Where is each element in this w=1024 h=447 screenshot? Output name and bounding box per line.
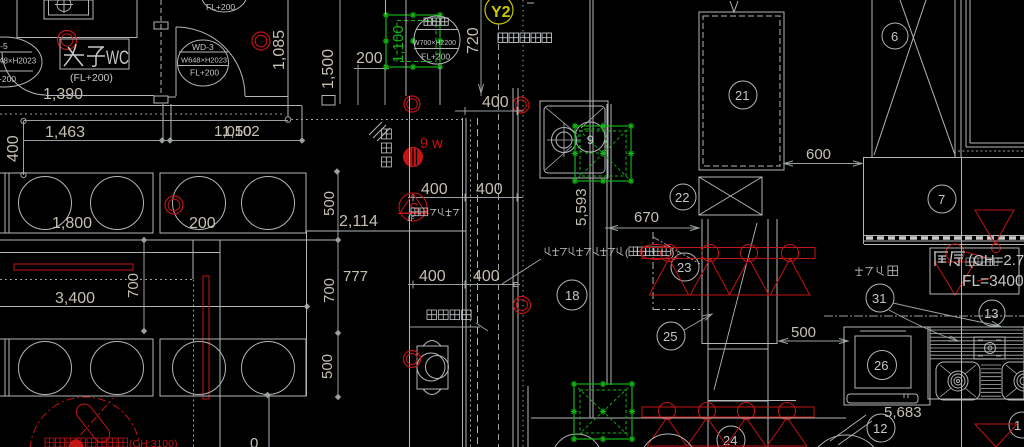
svg-text:Y2: Y2 <box>491 4 511 21</box>
svg-text:9 w: 9 w <box>420 136 443 152</box>
svg-text:1,085: 1,085 <box>271 30 288 70</box>
svg-text:200: 200 <box>356 50 383 67</box>
svg-text:FL+200: FL+200 <box>421 52 450 62</box>
svg-text:400: 400 <box>476 181 503 198</box>
svg-text:WD-3: WD-3 <box>192 42 214 52</box>
svg-text:S: S <box>409 200 419 217</box>
svg-text:400: 400 <box>421 181 448 198</box>
svg-text:5,683: 5,683 <box>884 404 922 421</box>
svg-text:500: 500 <box>321 191 338 216</box>
svg-text:WC: WC <box>106 48 129 69</box>
svg-text:FL=3400: FL=3400 <box>962 273 1024 290</box>
svg-text:400: 400 <box>5 135 22 162</box>
svg-text:(FL+200): (FL+200) <box>70 72 113 84</box>
svg-text:777: 777 <box>343 268 368 285</box>
svg-text:26: 26 <box>874 358 888 373</box>
svg-text:400: 400 <box>419 268 446 285</box>
svg-text:600: 600 <box>806 146 831 163</box>
svg-text:13: 13 <box>984 306 998 321</box>
svg-text:9: 9 <box>587 133 594 147</box>
svg-text:500: 500 <box>319 354 336 379</box>
svg-text:400: 400 <box>473 268 500 285</box>
svg-text:(CH=2.7: (CH=2.7 <box>968 252 1024 269</box>
svg-text:1F: 1F <box>407 216 415 223</box>
svg-text:670: 670 <box>634 209 659 226</box>
svg-text:1,500: 1,500 <box>320 49 337 89</box>
svg-text:FL+200: FL+200 <box>0 74 16 84</box>
svg-text:1,100: 1,100 <box>390 25 407 63</box>
svg-text:31: 31 <box>872 291 886 306</box>
svg-text:W700×H2200: W700×H2200 <box>413 40 456 47</box>
svg-text:23: 23 <box>677 260 691 275</box>
svg-text:0: 0 <box>250 435 258 447</box>
svg-text:25: 25 <box>663 329 677 344</box>
svg-text:7: 7 <box>938 192 945 207</box>
svg-text:700: 700 <box>321 278 338 303</box>
svg-text:(CH:3100): (CH:3100) <box>129 438 177 447</box>
svg-text:W648×H2023: W648×H2023 <box>0 57 37 66</box>
svg-text:400: 400 <box>482 94 509 111</box>
svg-text:FL+200: FL+200 <box>190 68 219 78</box>
svg-text:700: 700 <box>125 273 142 298</box>
svg-text:200: 200 <box>189 215 216 232</box>
svg-text:500: 500 <box>791 324 816 341</box>
svg-text:18: 18 <box>565 288 579 303</box>
svg-text:12: 12 <box>873 421 887 436</box>
svg-text:2,114: 2,114 <box>339 213 378 230</box>
svg-text:22: 22 <box>675 190 689 205</box>
svg-text:1,463: 1,463 <box>45 124 85 141</box>
svg-text:720: 720 <box>465 27 482 54</box>
svg-text:5,593: 5,593 <box>573 188 590 226</box>
svg-text:1,800: 1,800 <box>52 215 92 232</box>
svg-text:21: 21 <box>735 88 749 103</box>
svg-text:1,390: 1,390 <box>43 86 83 103</box>
svg-text:FL+200: FL+200 <box>206 2 235 12</box>
svg-text:6: 6 <box>891 29 898 44</box>
svg-text:WD-5: WD-5 <box>0 41 8 51</box>
svg-text:3,400: 3,400 <box>55 290 95 307</box>
svg-text:1,102: 1,102 <box>222 123 260 140</box>
svg-text:W648×H2023: W648×H2023 <box>181 56 227 65</box>
